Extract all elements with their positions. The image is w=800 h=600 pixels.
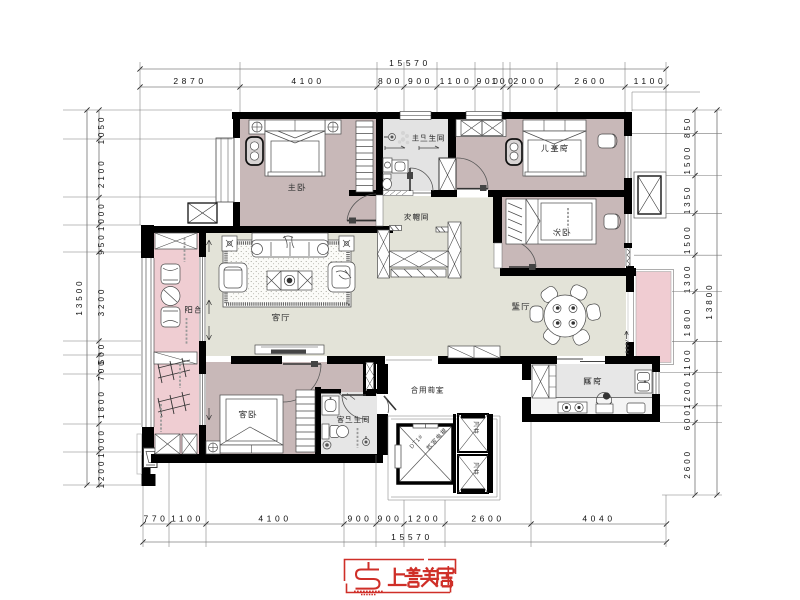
svg-text:3200: 3200 [97, 287, 106, 317]
svg-text:13500: 13500 [75, 278, 84, 315]
svg-text:1000: 1000 [97, 201, 106, 231]
svg-text:800: 800 [378, 76, 403, 86]
svg-text:2100: 2100 [97, 158, 106, 188]
svg-text:15570: 15570 [391, 532, 433, 542]
svg-text:1800: 1800 [683, 307, 692, 337]
svg-text:4100: 4100 [291, 76, 324, 86]
svg-text:4040: 4040 [582, 514, 615, 524]
svg-text:2600: 2600 [471, 514, 504, 524]
svg-text:1800: 1800 [97, 389, 106, 419]
svg-text:1100: 1100 [440, 76, 473, 86]
svg-text:4100: 4100 [258, 514, 291, 524]
svg-text:2600: 2600 [683, 449, 692, 479]
svg-text:1200: 1200 [97, 459, 106, 489]
svg-text:1500: 1500 [683, 224, 692, 254]
svg-text:13800: 13800 [705, 282, 714, 319]
svg-text:1050: 1050 [97, 115, 106, 145]
svg-text:900: 900 [408, 76, 433, 86]
svg-text:1000: 1000 [97, 428, 106, 458]
svg-text:600: 600 [683, 408, 692, 430]
svg-text:2870: 2870 [173, 76, 206, 86]
svg-text:700: 700 [97, 358, 106, 380]
svg-text:900: 900 [378, 514, 403, 524]
svg-text:1200: 1200 [683, 379, 692, 409]
svg-text:1200: 1200 [408, 514, 441, 524]
svg-text:1100: 1100 [634, 76, 667, 86]
svg-text:770: 770 [144, 514, 169, 524]
svg-text:1500: 1500 [683, 145, 692, 175]
svg-text:950: 950 [97, 232, 106, 254]
svg-text:900: 900 [348, 514, 373, 524]
svg-text:1300: 1300 [683, 264, 692, 294]
svg-text:15570: 15570 [389, 58, 431, 68]
svg-text:1100: 1100 [171, 514, 204, 524]
svg-text:850: 850 [683, 116, 692, 138]
svg-text:2000: 2000 [513, 76, 546, 86]
svg-text:1350: 1350 [683, 185, 692, 215]
svg-text:2600: 2600 [574, 76, 607, 86]
